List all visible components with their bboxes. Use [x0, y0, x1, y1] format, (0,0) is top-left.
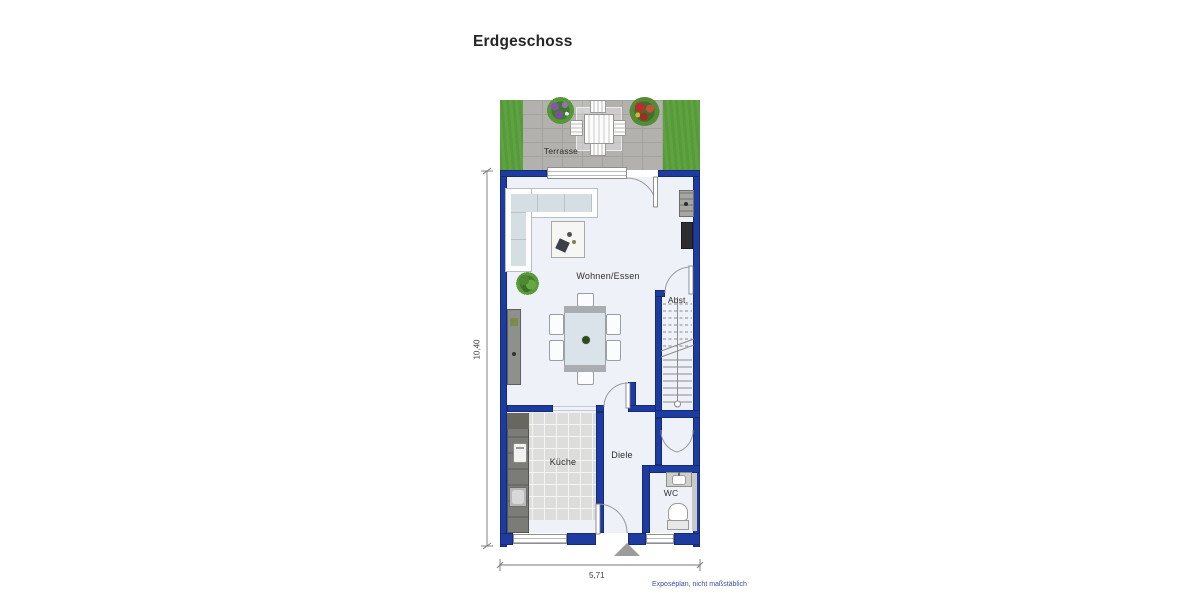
kitchen-oven — [513, 443, 527, 463]
terrace-table — [584, 114, 614, 144]
wall-stair-left — [655, 290, 662, 412]
wall-hall-stub — [628, 382, 636, 407]
dining-chair-west-1 — [549, 314, 564, 335]
terrace-chair-north — [590, 100, 606, 113]
shelf-decor — [684, 202, 688, 206]
wc-toilet-tank — [667, 520, 689, 530]
dining-chair-north — [577, 293, 594, 307]
room-label-wohnen-essen: Wohnen/Essen — [576, 271, 639, 281]
grass-left — [500, 100, 523, 170]
dining-table-band-top — [564, 306, 606, 313]
wall-kitchen-hall — [596, 412, 604, 533]
wall-top-right — [658, 170, 700, 177]
tv — [681, 222, 693, 249]
dimension-line-vertical — [481, 168, 493, 549]
room-label-kueche: Küche — [550, 457, 577, 467]
coffee-table-plant — [572, 240, 576, 244]
floor-plan: Erdgeschoss Terrasse — [0, 0, 1200, 600]
kitchen-counter — [507, 413, 529, 533]
sofa-cushions-top — [511, 194, 592, 212]
wall-stair-bottom — [655, 410, 700, 418]
kitchen-opening-threshold2 — [553, 410, 596, 411]
wall-top-left — [500, 170, 547, 177]
kitchen-counter-top-section — [507, 413, 529, 429]
wc-toilet-bowl — [668, 503, 688, 521]
wall-stair-top — [655, 290, 665, 297]
room-label-wc: WC — [664, 488, 679, 498]
sideboard-item — [510, 318, 518, 326]
wall-bottom-2 — [567, 533, 596, 545]
dimension-height-value: 10,40 — [473, 339, 482, 359]
coffee-table-bowl — [567, 232, 572, 237]
sideboard-bowl — [512, 352, 516, 356]
room-label-abstellraum: Abst. — [668, 295, 688, 305]
dining-chair-south — [577, 371, 594, 385]
dimension-width-value: 5,71 — [589, 571, 605, 580]
wall-bottom-4 — [674, 533, 700, 545]
wc-window — [646, 534, 674, 544]
flower-bush-red — [629, 97, 660, 126]
wall-wc-left — [642, 465, 650, 533]
terrace-chair-east — [613, 120, 626, 136]
sofa-cushions-left — [511, 212, 526, 266]
kitchen-opening-threshold — [553, 406, 596, 407]
dining-chair-east-1 — [606, 314, 621, 335]
grass-right — [663, 100, 700, 170]
room-label-terrasse: Terrasse — [544, 146, 578, 156]
terrace-chair-south — [590, 143, 606, 156]
wall-bottom-1 — [500, 533, 513, 545]
wc-sink-tap — [678, 472, 680, 476]
wall-kitchen-jamb — [596, 405, 604, 412]
kitchen-oven-handle — [516, 447, 524, 449]
dimension-line-horizontal — [497, 559, 703, 571]
coffee-table — [551, 221, 585, 258]
kitchen-window — [513, 534, 567, 544]
page-title: Erdgeschoss — [473, 33, 573, 51]
dining-chair-west-2 — [549, 340, 564, 361]
wall-living-kitchen — [507, 405, 553, 412]
terrace-window — [547, 167, 627, 179]
dining-chair-east-2 — [606, 340, 621, 361]
wall-bottom-3 — [628, 533, 646, 545]
terrace-chair-west — [570, 120, 583, 136]
dining-table-centerpiece — [581, 335, 591, 345]
wc-sink-basin — [672, 475, 686, 485]
footer-disclaimer: Exposéplan, nicht maßstäblich — [652, 581, 747, 588]
kitchen-sink-basin — [512, 490, 524, 504]
wc-wall-shading — [692, 473, 697, 531]
wall-closet-left — [655, 418, 662, 465]
dining-table-band-bottom — [564, 365, 606, 372]
living-room-plant — [516, 272, 539, 295]
room-label-diele: Diele — [611, 450, 633, 460]
